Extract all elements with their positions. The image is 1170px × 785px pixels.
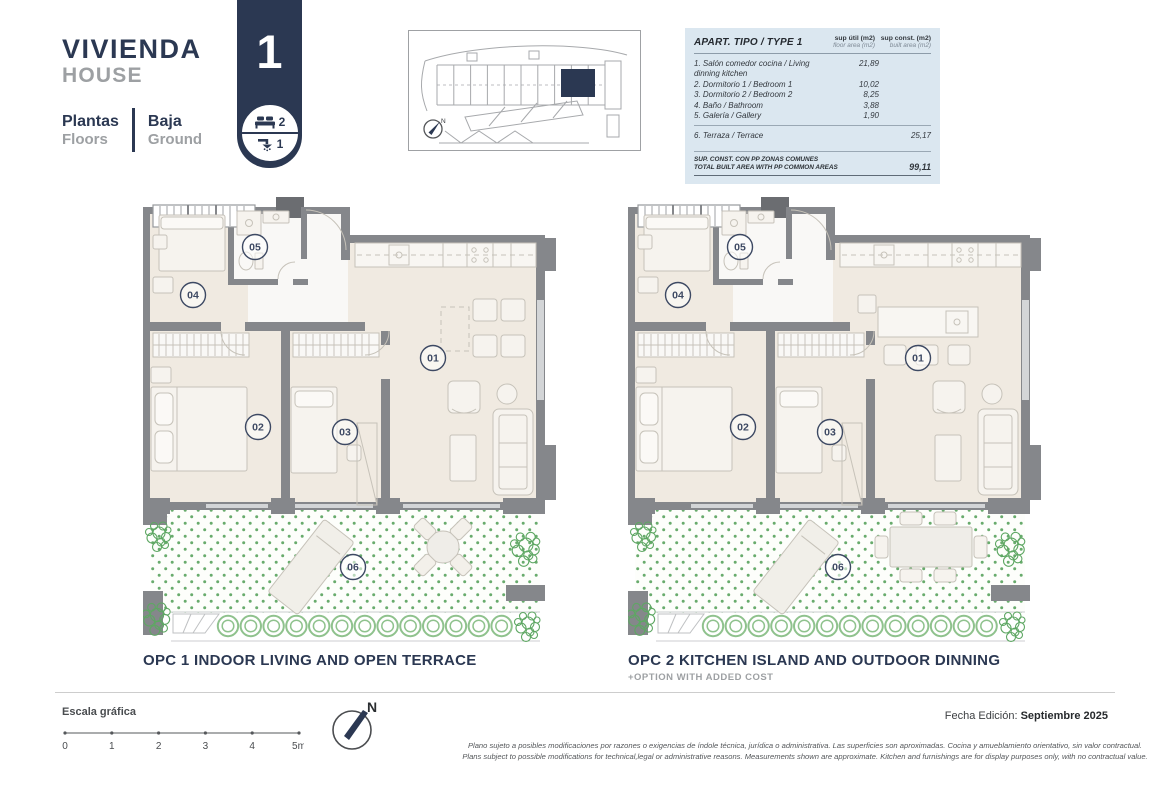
svg-text:0: 0 [62,741,68,752]
svg-text:03: 03 [824,427,836,439]
plantas-label-block: Plantas Floors [62,112,119,149]
floor-plan-opc2: 010203040506 [628,195,1045,647]
table-row: 5. Galería / Gallery1,90 [694,111,931,121]
page-title: VIVIENDA [62,34,202,64]
svg-text:4: 4 [249,741,255,752]
legal-disclaimer: Plano sujeto a posibles modificaciones p… [455,740,1155,762]
graphic-scale-bar: 012345m [60,724,304,759]
caption-opc1-text: OPC 1 INDOOR LIVING AND OPEN TERRACE [143,652,477,669]
plantas-label: Plantas [62,112,119,131]
svg-text:02: 02 [252,422,264,434]
bed-icon [254,115,276,129]
caption-opc2-note: +OPTION WITH ADDED COST [628,672,1000,683]
compass-icon: N [326,698,382,754]
site-plan-drawing: N [409,31,639,149]
site-plan-thumbnail: N [408,30,641,151]
bedrooms-count: 2 [279,115,286,129]
floor-value-block: Baja Ground [148,112,202,149]
svg-text:5m: 5m [292,741,304,752]
table-row-terrace: 6. Terraza / Terrace 25,17 [694,126,931,150]
total-value: 99,11 [879,162,931,172]
rooms-badge: 2 1 [240,103,300,163]
edition-value: Septiembre 2025 [1021,710,1108,722]
svg-text:05: 05 [249,242,261,254]
svg-text:03: 03 [339,427,351,439]
col-built-area: sup const. (m2) built area (m2) [875,35,931,49]
terrace-label: 6. Terraza / Terrace [694,131,837,141]
disclaimer-es: Plano sujeto a posibles modificaciones p… [455,740,1155,751]
svg-text:N: N [441,118,446,125]
bathrooms-row: 1 [256,134,284,154]
baja-label: Baja [148,112,202,131]
bedrooms-row: 2 [254,112,286,132]
table-row: 1. Salón comedor cocina / Living dinning… [694,59,931,80]
svg-text:02: 02 [737,422,749,434]
area-table-header: APART. TIPO / TYPE 1 sup útil (m2) floor… [694,35,931,54]
table-total-row: SUP. CONST. CON PP ZONAS COMUNES TOTAL B… [694,152,931,176]
svg-text:N: N [367,699,377,715]
floors-label: Floors [62,131,119,149]
col-floor-area-es: sup útil (m2) [819,35,875,42]
floors-divider [132,108,135,152]
thumbnail-compass-icon: N [424,118,446,138]
svg-text:06: 06 [832,562,844,574]
table-row: 3. Dormitorio 2 / Bedroom 28,25 [694,90,931,100]
scale-label: Escala gráfica [62,706,136,718]
svg-text:04: 04 [672,290,684,302]
highlighted-unit [561,69,595,97]
area-table-title: APART. TIPO / TYPE 1 [694,35,819,48]
area-table-rows: 1. Salón comedor cocina / Living dinning… [694,54,931,125]
col-floor-area: sup útil (m2) floor area (m2) [819,35,875,49]
ground-label: Ground [148,131,202,149]
col-built-area-en: built area (m2) [875,42,931,49]
plan-sheet-page: VIVIENDA HOUSE Plantas Floors Baja Groun… [0,0,1170,785]
bathrooms-count: 1 [277,137,284,151]
north-compass: N [326,698,382,759]
table-row: 4. Baño / Bathroom3,88 [694,101,931,111]
svg-text:3: 3 [203,741,209,752]
apartment-area-table: APART. TIPO / TYPE 1 sup útil (m2) floor… [685,28,940,184]
terrace-util [837,131,879,141]
shower-icon [256,137,274,152]
col-built-area-es: sup const. (m2) [875,35,931,42]
svg-text:01: 01 [912,353,924,365]
caption-opc2-text: OPC 2 KITCHEN ISLAND AND OUTDOOR DINNING [628,652,1000,669]
total-labels: SUP. CONST. CON PP ZONAS COMUNES TOTAL B… [694,156,879,172]
disclaimer-en: Plans subject to possible modifications … [455,751,1155,762]
edition-label: Fecha Edición: [945,710,1018,722]
footer-divider [55,692,1115,693]
svg-text:06: 06 [347,562,359,574]
floor-plan-opc1: 010203040506 [143,195,560,647]
col-floor-area-en: floor area (m2) [819,42,875,49]
brand-block: VIVIENDA HOUSE [62,34,202,88]
floor-selector-block: Plantas Floors Baja Ground [62,108,202,152]
house-number-ribbon: 1 2 [237,0,302,168]
terrace-built-value: 25,17 [879,131,931,141]
plan-caption-opc1: OPC 1 INDOOR LIVING AND OPEN TERRACE [143,652,477,669]
svg-text:2: 2 [156,741,162,752]
table-row: 2. Dormitorio 1 / Bedroom 110,02 [694,80,931,90]
svg-text:1: 1 [109,741,115,752]
house-number: 1 [237,24,302,79]
total-label-en: TOTAL BUILT AREA WITH PP COMMON AREAS [694,164,879,172]
plan-caption-opc2: OPC 2 KITCHEN ISLAND AND OUTDOOR DINNING… [628,652,1000,683]
page-subtitle: HOUSE [62,64,202,88]
svg-text:05: 05 [734,242,746,254]
edition-date: Fecha Edición: Septiembre 2025 [945,710,1108,722]
svg-text:04: 04 [187,290,199,302]
total-label-es: SUP. CONST. CON PP ZONAS COMUNES [694,156,879,164]
svg-text:01: 01 [427,353,439,365]
